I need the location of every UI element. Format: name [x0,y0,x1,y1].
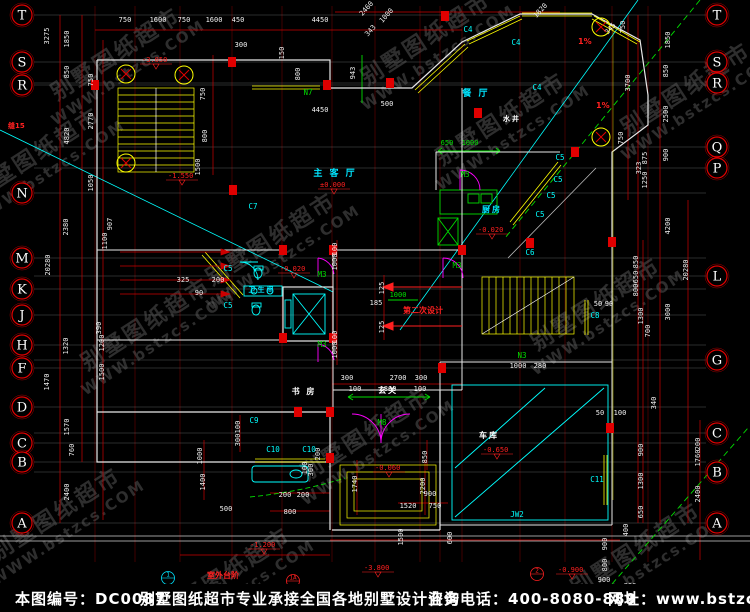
dim-text: 400 [622,524,630,537]
column-block [526,238,534,248]
dim-text: 2400 [63,484,71,501]
dim-text: 1300 [637,473,645,490]
dim-text: 343 [363,23,377,38]
dim-text: 1500 [397,529,405,546]
window-tag: C5 [553,175,562,184]
dim-text: 1850 [63,31,71,48]
level-triangle [489,234,495,239]
dim-text: 943 [349,67,357,80]
dim-text: 3275 [43,28,51,45]
door-tag: N7 [303,88,312,97]
window-tag: C5 [223,301,232,310]
dim-text: 200 [212,276,225,284]
dim-text: 4820 [63,128,71,145]
dim-text: 4200 [664,218,672,235]
detail-marker-label: 2 [535,568,539,575]
dim-text: 345 [603,21,617,36]
watermark: 别墅图纸超市WWW.bstzcs.COM [419,59,594,194]
dim-text: 1050 [87,175,95,192]
axis-label: C [17,437,27,452]
dim-text: 50 [594,300,602,308]
dim-text: 90 [195,289,203,297]
room-label: 书 房 [292,386,317,396]
column-block [228,57,236,67]
dim-text: 4450 [312,16,329,24]
dim-text: 850 [63,66,71,79]
door-tag: M3 [452,261,461,270]
door-tag: M8 [377,418,387,427]
dim-text: 750 [178,16,191,24]
column-block [386,78,394,88]
watermark: 别墅图纸超市WWW.bstzcs.COM [514,244,689,379]
room-label: 卫生间 [249,285,276,294]
dim-text: 150 [278,47,286,60]
dim-text: 100 [331,331,339,344]
dim-text: 907 [106,218,114,231]
dim-text: 1000 [462,139,479,147]
window-tag: C5 [535,210,544,219]
level-value: -0.020 [478,226,503,234]
axis-label: R [17,79,28,94]
elevator-shaft-wall [283,287,333,341]
kitchen-sink [481,194,492,203]
axis-label: B [17,456,27,471]
dim-text: 300 [234,434,242,447]
axis-label: H [16,339,27,354]
round-column-x [121,158,131,168]
room-label: 玄关 [378,385,398,395]
dim-text: 800 [632,284,640,297]
axis-label: L [713,270,722,285]
footer-info-bar: 本图编号：DC0087 别墅图纸超市专业承接全国各地别墅设计业务 咨询电话：40… [0,584,750,612]
dim-text: 850 [632,256,640,269]
axis-label: G [712,354,722,369]
watermark: 别墅图纸超市WWW.bstzcs.COM [344,0,519,114]
dim-text: 20280 [44,254,52,275]
window-tag: C4 [532,83,542,92]
detail-marker-label: 1A [289,575,297,582]
column-block [438,363,446,373]
dim-text: 3700 [624,75,632,92]
dim-text: 1520 [400,502,417,510]
room-label: 厨房 [482,204,502,214]
door-tag: M3 [460,170,469,179]
axis-label: T [18,9,27,24]
window-tag: C5 [546,191,555,200]
dim-text: 750 [617,132,625,145]
watermark: 别墅图纸超市WWW.bstzcs.COM [604,29,750,164]
axis-label: D [17,401,27,416]
door-tag: M3 [317,270,326,279]
dim-text: 300 [307,464,315,477]
dim-text: 900 [601,538,609,551]
window-tag: JW2 [510,510,524,519]
window-tag: C5 [223,264,232,273]
dim-text: 100 [414,385,427,393]
dim-text: 1740 [351,476,359,493]
dim-text: 1250 [641,172,649,189]
dim-text: 1000 [196,448,204,465]
dim-text: 1760 [694,450,702,467]
dim-text: 850 [662,65,670,78]
dim-text: 750 [199,88,207,101]
dim-text: 1320 [62,338,70,355]
column-block [571,147,579,157]
website-url: 网址：www.bstzcs.com [608,588,750,609]
column-block [474,108,482,118]
dim-text: 4450 [312,106,329,114]
dim-text: 100 [614,409,627,417]
dim-text: 1850 [664,32,672,49]
dim-text: 125 [378,282,386,295]
phone-number: 咨询电话：400-8080-889 [428,588,637,609]
dim-text: 185 [370,299,383,307]
note-text: 1% [578,37,592,46]
dim-text: 900 [424,490,437,498]
service-text: 别墅图纸超市专业承接全国各地别墅设计业务 [140,588,460,609]
column-block [608,237,616,247]
round-column-x [596,132,606,142]
room-label: 主 客 厅 [313,167,356,179]
column-block [279,245,287,255]
dim-text: 500 [220,505,233,513]
watermark-text: 别墅图纸超市 [355,0,496,91]
angled-bay-wall [508,168,596,258]
level-value: -0.020 [280,265,305,273]
window-tag: C8 [590,311,600,320]
dim-text: 750 [87,74,95,87]
dim-text: 1000 [378,7,395,25]
floor-plan-canvas: 别墅图纸超市WWW.bstzcs.COM别墅图纸超市WWW.bstzcs.COM… [0,0,750,584]
dim-text: 125 [378,321,386,334]
elevator-x [293,294,325,334]
dim-text: 500 [381,100,394,108]
dim-text: 1000 [390,291,407,299]
level-triangle [494,454,500,459]
window-tag: C11 [590,475,604,484]
axis-label: J [17,309,24,324]
window-tag: C10 [302,445,316,454]
dim-text: 1600 [206,16,223,24]
axis-label: C [712,427,722,442]
dim-text: 850 [421,451,429,464]
dim-text: 650 [632,271,640,284]
level-value: -0.900 [558,566,583,574]
garage-ramp-lines [455,388,604,517]
dim-text: 2400 [694,486,702,503]
dim-text: 900 [637,444,645,457]
dim-text: 2380 [62,219,70,236]
dim-text: 450 [232,16,245,24]
level-value: -1.200 [250,541,275,549]
window-tag: C6 [525,248,535,257]
window-tag: C4 [463,25,473,34]
dim-text: 50 [596,409,604,417]
dim-text: 200 [694,438,702,451]
dim-text: 1500 [98,364,106,381]
dim-text: 3000 [664,304,672,321]
flue-shaft-x [438,218,458,245]
axis-label: K [17,283,27,298]
dim-text: 900 [662,149,670,162]
axis-label: A [711,517,722,532]
dim-text: 1570 [63,419,71,436]
note-text: 室外台阶 [207,570,239,580]
dim-text: 20280 [682,259,690,280]
room-label: 水井 [503,114,521,123]
dim-text: 90 [605,300,613,308]
dim-text: 100 [234,421,242,434]
level-triangle [375,572,381,577]
kitchen-sink [468,194,479,203]
column-block [606,423,614,433]
column-block [441,11,449,21]
note-text: 缝15 [8,121,25,130]
toilet [252,305,260,315]
axis-label: F [17,362,26,377]
round-column-x [179,70,189,80]
dim-text: 2700 [390,374,407,382]
dim-text: 1600 [150,16,167,24]
dim-text: 750 [429,502,442,510]
axis-label: S [713,56,722,71]
dim-text: 1820 [532,2,549,20]
axis-label: N [16,187,27,202]
dim-text: 1470 [43,374,51,391]
dim-text: 700 [644,325,652,338]
dim-text: 300 [415,374,428,382]
dim-text: 200 [297,491,310,499]
dim-text: 1100 [101,233,109,250]
level-value: -3.050 [142,56,167,64]
column-block [229,185,237,195]
note-text: 1% [596,101,610,110]
axis-label: T [713,9,722,24]
column-block [279,333,287,343]
level-value: ±0.000 [320,181,345,189]
dim-text: 750 [119,16,132,24]
dim-text: 900 [598,576,611,584]
axis-label: P [713,162,722,177]
cad-sheet: 别墅图纸超市WWW.bstzcs.COM别墅图纸超市WWW.bstzcs.COM… [0,0,750,612]
dim-text: 390 [95,322,103,335]
level-value: -3.800 [364,564,389,572]
dim-text: 1000 [510,362,527,370]
dim-text: 325 [177,276,190,284]
exterior-wall [97,60,440,530]
window-tag: C4 [511,38,521,47]
dim-text: 750 [619,21,627,34]
note-text: 第二次设计 [403,305,443,315]
dim-text: 100 [349,385,362,393]
dim-text: 800 [601,559,609,572]
column-block [458,245,466,255]
axis-label: R [712,77,723,92]
dim-text: 300 [235,41,248,49]
column-block [326,453,334,463]
dim-text: 650 [637,506,645,519]
dim-text: 800 [201,130,209,143]
axis-label: A [16,517,27,532]
room-label: 车库 [479,430,499,440]
dim-text: 600 [446,532,454,545]
level-value: -1.550 [168,172,193,180]
room-label: 餐 厅 [461,87,489,99]
axis-label: M [15,252,28,267]
elevator-door [285,300,291,328]
dim-text: 340 [650,397,658,410]
level-value: -0.650 [483,446,508,454]
dim-text: 200 [279,491,292,499]
dim-text: 2500 [662,106,670,123]
dim-text: 100 [331,243,339,256]
dim-text: 1500 [194,159,202,176]
dim-text: 1400 [199,474,207,491]
dim-text: 650 [441,139,454,147]
window-tag: C9 [249,416,258,425]
column-block [294,407,302,417]
level-triangle [386,472,392,477]
dim-text: 1200 [98,335,106,352]
dim-text: 280 [534,362,547,370]
window-tag: C7 [248,202,257,211]
dim-text: 800 [284,508,297,516]
column-block [323,80,331,90]
column-block [326,407,334,417]
axis-label: Q [712,141,723,156]
level-value: -0.060 [375,464,400,472]
window-tag: C10 [266,445,280,454]
dim-text: 1300 [637,308,645,325]
axis-label: B [712,466,722,481]
dim-text: 2770 [87,113,95,130]
dim-text: 760 [68,444,76,457]
door-tag: M3 [317,340,326,349]
boundary-dashed-line [612,428,748,584]
detail-marker-label: 1 [166,572,170,579]
window-tag: C5 [555,153,564,162]
dim-text: 300 [341,374,354,382]
dim-text: 800 [294,68,302,81]
axis-label: S [18,56,27,71]
door-tag: N3 [517,351,526,360]
